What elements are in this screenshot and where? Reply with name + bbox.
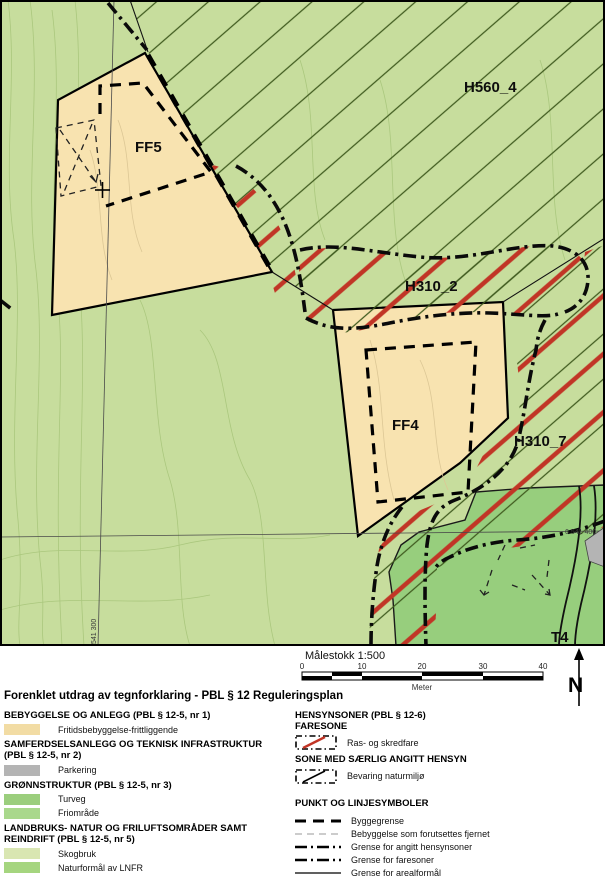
legend-heading-gronnstruktur: GRØNNSTRUKTUR (PBL § 12-5, nr 3) (4, 780, 286, 791)
label-h310-7: H310_7 (514, 433, 567, 450)
line-sample-faresoner (295, 856, 341, 864)
swatch-bevaring (295, 769, 337, 784)
legend-line-hensynsoner: Grense for angitt hensynsoner (295, 842, 603, 852)
legend-heading-samferdsel: SAMFERDSELSANLEGG OG TEKNISK INFRASTRUKT… (4, 739, 286, 761)
legend-line-byggegrense: Byggegrense (295, 816, 603, 826)
legend-heading-saerlig-hensyn: SONE MED SÆRLIG ANGITT HENSYN (295, 754, 603, 765)
legend-line-arealformal: Grense for arealformål (295, 868, 603, 878)
legend-heading-landbruk: LANDBRUKS- NATUR OG FRILUFTSOMRÅDER SAMT… (4, 823, 286, 845)
legend-heading-linjesymboler: PUNKT OG LINJESYMBOLER (295, 798, 603, 809)
north-arrow-icon: N (568, 648, 584, 706)
label-h310-2: H310_2 (405, 278, 458, 295)
swatch-ras-skredfare (295, 735, 337, 750)
legend-item-label: Grense for angitt hensynsoner (351, 842, 472, 852)
line-sample-arealformal (295, 869, 341, 877)
legend-item-skogbruk: Skogbruk (4, 848, 286, 859)
legend-item-label: Byggegrense (351, 816, 404, 826)
legend-left-column: BEBYGGELSE OG ANLEGG (PBL § 12-5, nr 1) … (4, 710, 286, 877)
legend-title: Forenklet utdrag av tegnforklaring - PBL… (4, 690, 424, 702)
swatch-naturformal (4, 862, 40, 873)
label-h560-4: H560_4 (464, 79, 517, 96)
legend-item-fritidsbebyggelse: Fritidsbebyggelse-frittliggende (4, 724, 286, 735)
legend-item-bevaring: Bevaring naturmiljø (295, 769, 603, 784)
swatch-skogbruk (4, 848, 40, 859)
legend-item-label: Parkering (58, 765, 97, 775)
legend-heading-faresone: FARESONE (295, 721, 603, 732)
legend-item-label: Ras- og skredfare (347, 738, 419, 748)
label-ff5: FF5 (135, 139, 162, 156)
scalebar-tick-10: 10 (358, 662, 367, 671)
legend-item-turveg: Turveg (4, 794, 286, 805)
legend-item-label: Bevaring naturmiljø (347, 771, 425, 781)
grid-easting-label: 541 300 (91, 619, 98, 644)
grid-northing-label: 6 541 400 (565, 529, 596, 536)
legend-item-ras-skredfare: Ras- og skredfare (295, 735, 603, 750)
legend-item-label: Friområde (58, 808, 99, 818)
legend-item-friomrade: Friområde (4, 808, 286, 819)
swatch-turveg (4, 794, 40, 805)
legend-item-label: Naturformål av LNFR (58, 863, 143, 873)
legend-line-faresoner: Grense for faresoner (295, 855, 603, 865)
line-sample-byggegrense (295, 817, 341, 825)
legend-line-fjernet: Bebyggelse som forutsettes fjernet (295, 829, 603, 839)
line-sample-fjernet (295, 830, 341, 838)
legend-item-label: Skogbruk (58, 849, 96, 859)
label-t4: T4 (551, 629, 569, 646)
line-sample-hensynsoner (295, 843, 341, 851)
scalebar-tick-40: 40 (539, 662, 548, 671)
label-ff4: FF4 (392, 417, 419, 434)
legend-right-column: HENSYNSONER (PBL § 12-6) FARESONE Ras- o… (295, 710, 603, 879)
north-arrow-label: N (568, 674, 583, 697)
scalebar-tick-30: 30 (479, 662, 488, 671)
legend-item-parkering: Parkering (4, 765, 286, 776)
scalebar (302, 672, 543, 680)
legend-item-label: Turveg (58, 794, 86, 804)
swatch-friomrade (4, 808, 40, 819)
legend-item-label: Bebyggelse som forutsettes fjernet (351, 829, 490, 839)
legend-item-naturformal: Naturformål av LNFR (4, 862, 286, 873)
swatch-fritidsbebyggelse (4, 724, 40, 735)
legend-item-label: Fritidsbebyggelse-frittliggende (58, 725, 178, 735)
map-footer: Målestokk 1:500 0 10 20 30 40 Meter N (285, 646, 605, 712)
swatch-parkering (4, 765, 40, 776)
legend-item-label: Grense for arealformål (351, 868, 441, 878)
plan-document: H560_4 FF5 H310_2 FF4 H310_7 T4 6 541 40… (0, 0, 605, 879)
scalebar-title: Målestokk 1:500 (305, 650, 385, 662)
legend-heading-bebyggelse: BEBYGGELSE OG ANLEGG (PBL § 12-5, nr 1) (4, 710, 286, 721)
legend-item-label: Grense for faresoner (351, 855, 434, 865)
scalebar-tick-0: 0 (300, 662, 305, 671)
legend-heading-hensynsoner: HENSYNSONER (PBL § 12-6) (295, 710, 603, 721)
zoning-map: H560_4 FF5 H310_2 FF4 H310_7 T4 6 541 40… (0, 0, 605, 646)
scalebar-tick-20: 20 (418, 662, 427, 671)
